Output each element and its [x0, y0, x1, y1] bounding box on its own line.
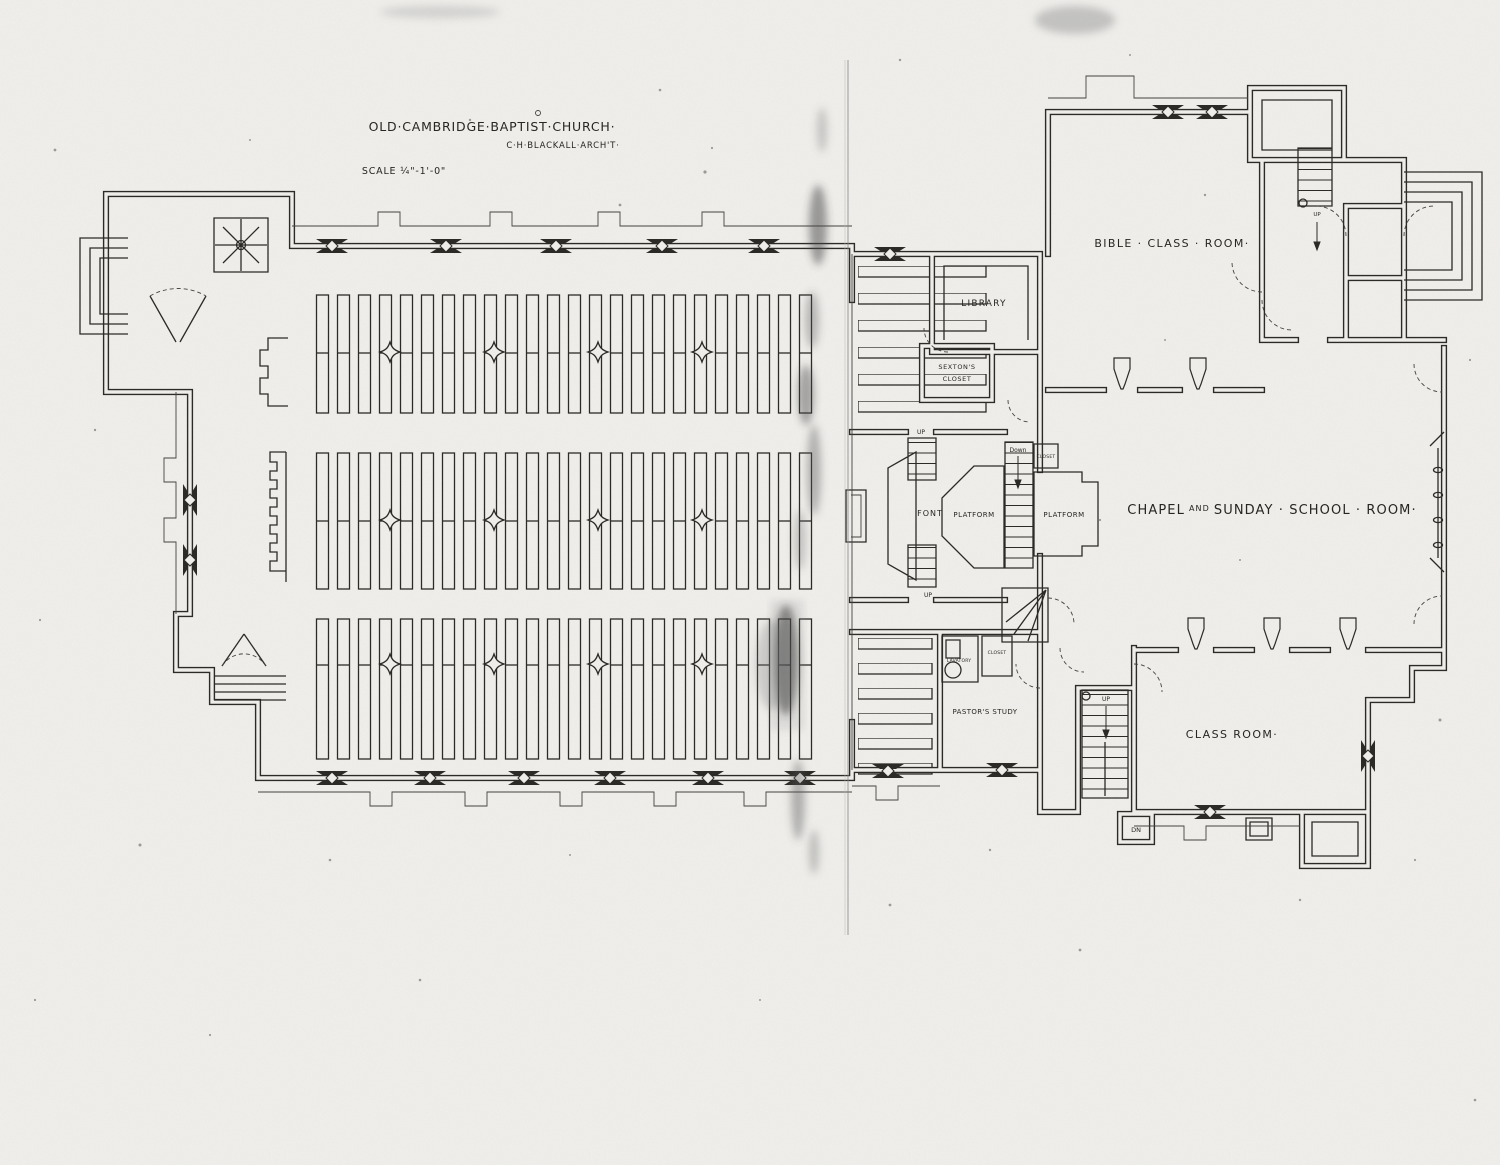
scanned-floor-plan-page: OLD·CAMBRIDGE·BAPTIST·CHURCH· C·H·BLACKA… — [0, 0, 1500, 1165]
paper-grain-overlay — [0, 0, 1500, 1165]
floor-plan-sheet: OLD·CAMBRIDGE·BAPTIST·CHURCH· C·H·BLACKA… — [0, 0, 1500, 1165]
